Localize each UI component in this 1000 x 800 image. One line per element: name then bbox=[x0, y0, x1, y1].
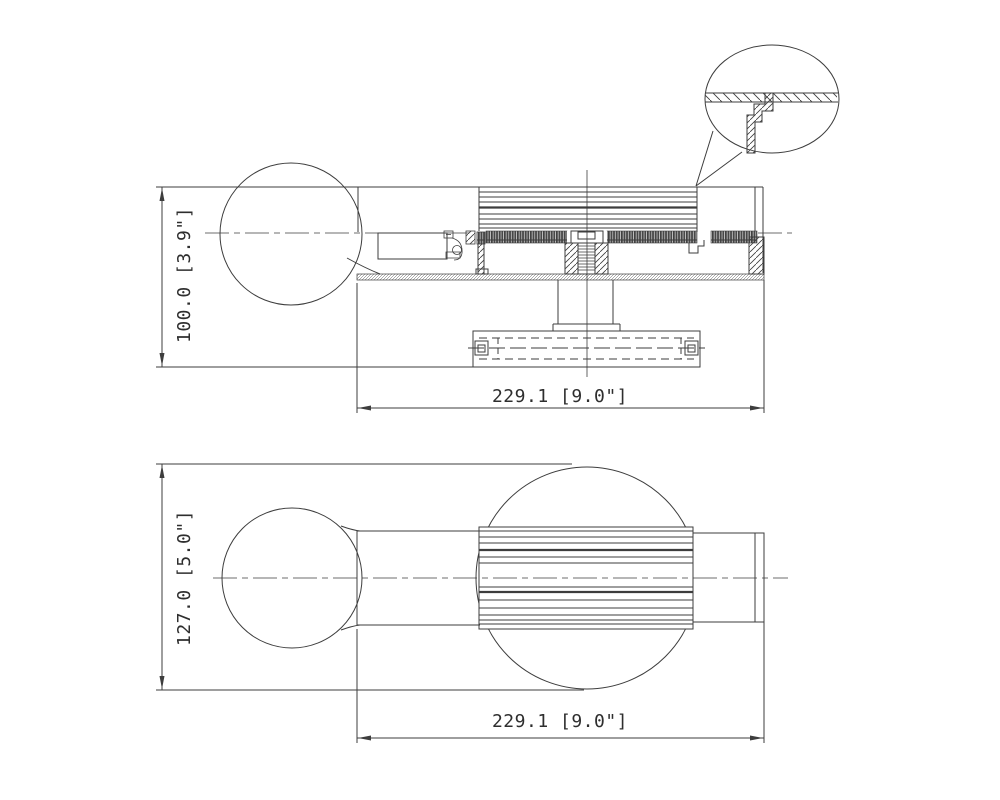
mounting-stud bbox=[565, 231, 608, 274]
back-plate bbox=[357, 274, 764, 280]
dim-label-height-plan: 127.0 [5.0"] bbox=[174, 510, 195, 646]
junction-box bbox=[378, 233, 447, 259]
dimension-width-section: 229.1 [9.0"] bbox=[357, 280, 764, 413]
led-board-strip bbox=[486, 231, 757, 243]
wall-bracket bbox=[468, 331, 705, 367]
housing-top-edge bbox=[358, 187, 763, 232]
wall-mount-detail-callout bbox=[696, 45, 839, 186]
mounting-column bbox=[553, 280, 620, 331]
housing-right-endcap bbox=[479, 187, 763, 273]
right-interior-wall bbox=[749, 237, 764, 274]
globe-outline-section bbox=[220, 163, 362, 305]
end-cap-plan bbox=[693, 533, 764, 622]
drawing-canvas: 100.0 [3.9"] 229.1 [9.0"] bbox=[0, 0, 1000, 800]
globe-neck-fillet bbox=[347, 258, 380, 274]
detail-bubble-tail bbox=[696, 131, 742, 186]
dimension-width-plan: 229.1 [9.0"] bbox=[357, 622, 764, 743]
dim-label-height-section: 100.0 [3.9"] bbox=[174, 207, 195, 343]
dim-label-width-section: 229.1 [9.0"] bbox=[492, 386, 628, 407]
heatsink-fins-section bbox=[479, 192, 697, 228]
plan-view: 127.0 [5.0"] 229.1 [9.0"] bbox=[156, 464, 788, 743]
section-view: 100.0 [3.9"] 229.1 [9.0"] bbox=[156, 45, 839, 413]
dim-label-width-plan: 229.1 [9.0"] bbox=[492, 711, 628, 732]
technical-drawing: 100.0 [3.9"] 229.1 [9.0"] bbox=[0, 0, 1000, 800]
